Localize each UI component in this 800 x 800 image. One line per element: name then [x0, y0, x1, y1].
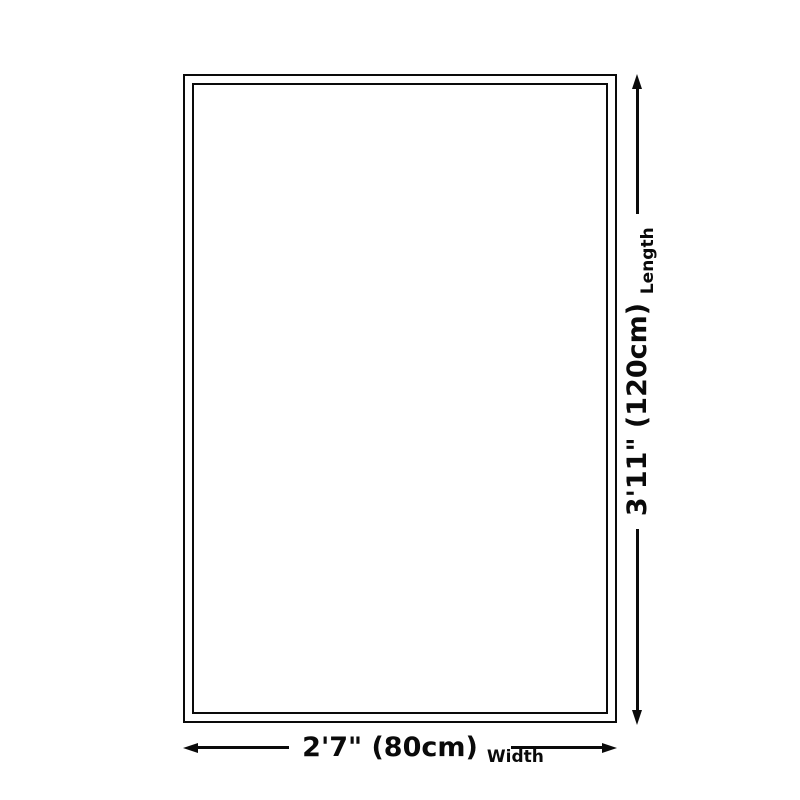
- arrow-right-icon: [602, 743, 617, 753]
- arrow-up-icon: [632, 74, 642, 89]
- width-caption: Width: [487, 749, 544, 766]
- arrow-down-icon: [632, 710, 642, 725]
- width-value: 2'7" (80cm): [302, 734, 478, 761]
- rug-outline: [183, 74, 617, 723]
- length-arrow-line-bottom: [636, 529, 639, 710]
- length-caption: Length: [638, 227, 658, 294]
- length-dimension: 3'11" (120cm)Length: [616, 74, 658, 725]
- dimension-diagram: 3'11" (120cm)Length 2'7" (80cm)Width: [0, 0, 800, 800]
- width-dimension-label: 2'7" (80cm)Width: [302, 734, 498, 761]
- arrow-left-icon: [183, 743, 198, 753]
- length-arrow-line-top: [636, 89, 639, 214]
- rug-inner-border: [192, 83, 608, 714]
- length-value: 3'11" (120cm): [622, 303, 653, 516]
- width-dimension: 2'7" (80cm)Width: [183, 727, 617, 768]
- length-dimension-label: 3'11" (120cm)Length: [624, 227, 651, 516]
- width-arrow-line-left: [198, 746, 289, 749]
